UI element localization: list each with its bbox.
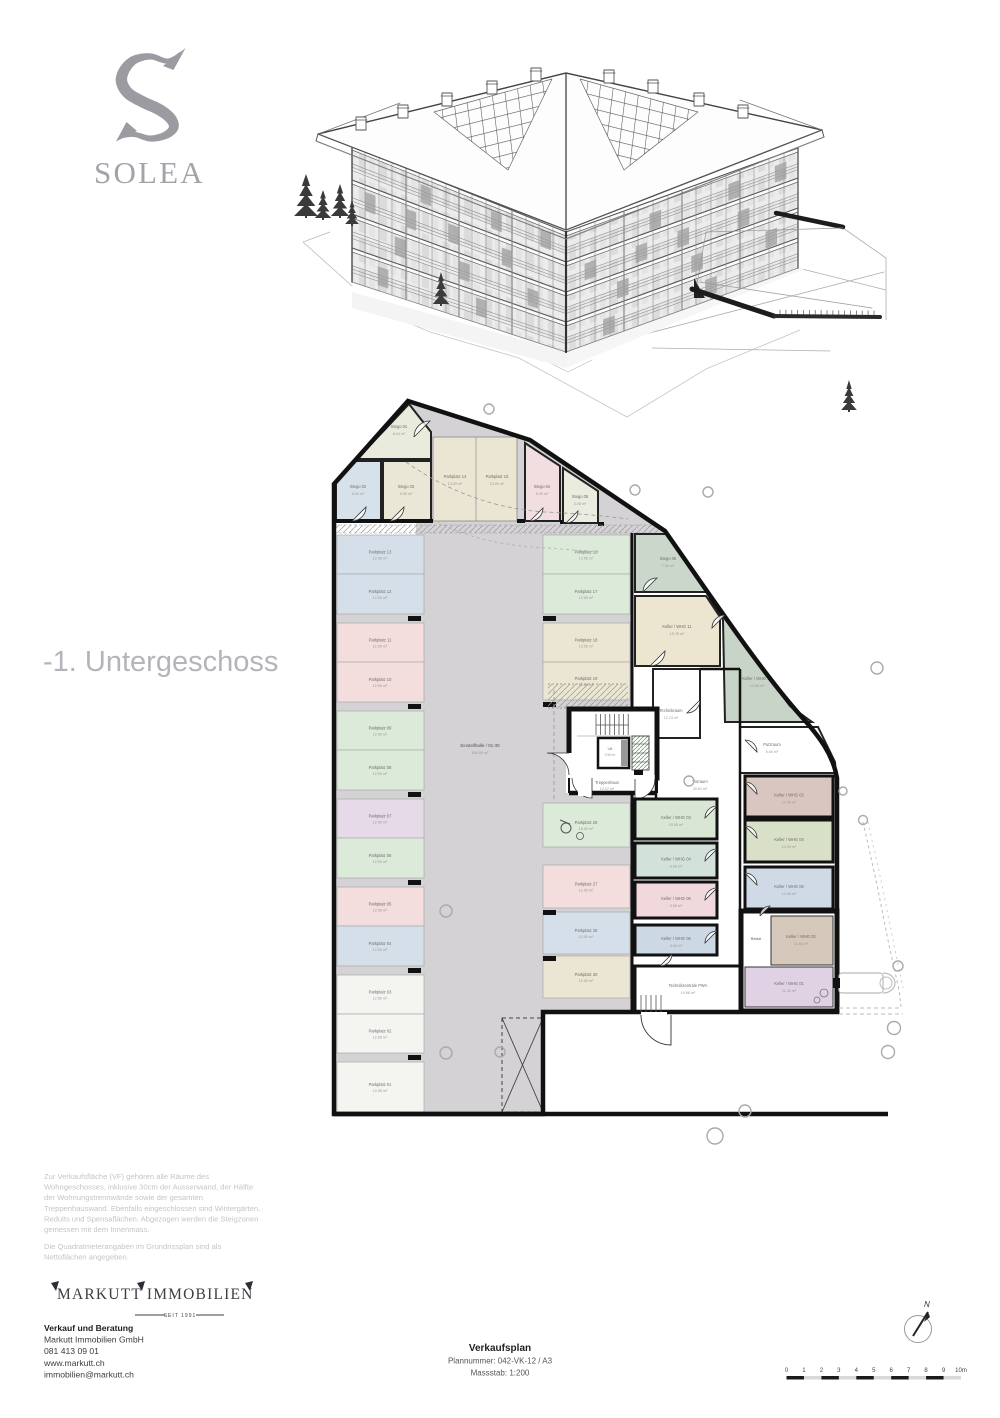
svg-text:SOLEA: SOLEA — [94, 155, 205, 190]
svg-text:Parkplatz 04: Parkplatz 04 — [369, 941, 392, 946]
svg-text:www.markutt.ch: www.markutt.ch — [43, 1358, 105, 1368]
svg-text:Parkplatz 18: Parkplatz 18 — [575, 638, 598, 643]
svg-text:Keller / WHG 04: Keller / WHG 04 — [661, 857, 691, 862]
svg-text:12.50 m²: 12.50 m² — [373, 948, 388, 952]
svg-text:10m: 10m — [955, 1368, 967, 1374]
svg-text:Parkplatz 13: Parkplatz 13 — [369, 550, 392, 555]
svg-text:Parkplatz 26: Parkplatz 26 — [575, 820, 598, 825]
svg-text:9.98 m²: 9.98 m² — [670, 865, 683, 869]
svg-text:12.50 m²: 12.50 m² — [373, 557, 388, 561]
svg-text:Keller / WHG 04: Keller / WHG 04 — [774, 837, 804, 842]
svg-text:Massstab: 1:200: Massstab: 1:200 — [471, 1369, 530, 1378]
svg-text:15.78 m²: 15.78 m² — [670, 632, 685, 636]
svg-text:12.50 m²: 12.50 m² — [579, 596, 594, 600]
svg-text:13.00 m²: 13.00 m² — [490, 482, 505, 486]
svg-text:Parkplatz 11: Parkplatz 11 — [369, 638, 392, 643]
svg-text:Verkaufsplan: Verkaufsplan — [469, 1343, 531, 1354]
svg-text:9.06 m²: 9.06 m² — [400, 492, 413, 496]
svg-text:Parkplatz 27: Parkplatz 27 — [575, 882, 598, 887]
svg-text:Stego 01: Stego 01 — [391, 424, 408, 429]
svg-text:29.61 m²: 29.61 m² — [693, 787, 708, 791]
svg-text:Parkplatz 12: Parkplatz 12 — [369, 589, 392, 594]
svg-text:12.12 m²: 12.12 m² — [600, 787, 615, 791]
svg-text:Putzraum: Putzraum — [763, 742, 781, 747]
svg-text:SEIT 1991: SEIT 1991 — [164, 1313, 197, 1319]
svg-text:12.08 m²: 12.08 m² — [782, 801, 797, 805]
svg-text:Parkplatz 07: Parkplatz 07 — [369, 814, 392, 819]
svg-text:8.04 m²: 8.04 m² — [352, 492, 365, 496]
svg-text:Keller / WHG 06: Keller / WHG 06 — [774, 884, 804, 889]
svg-text:12.50 m²: 12.50 m² — [373, 909, 388, 913]
svg-text:Parkplatz 06: Parkplatz 06 — [369, 853, 392, 858]
svg-text:Keller / WHG 02: Keller / WHG 02 — [786, 934, 816, 939]
svg-text:MARKUTT IMMOBILIEN: MARKUTT IMMOBILIEN — [57, 1286, 254, 1303]
svg-text:12.50 m²: 12.50 m² — [579, 979, 594, 983]
svg-text:Markutt Immobilien GmbH: Markutt Immobilien GmbH — [44, 1335, 144, 1345]
svg-text:12.50 m²: 12.50 m² — [373, 997, 388, 1001]
svg-text:Stego 04: Stego 04 — [534, 484, 551, 489]
svg-text:Reduits und Spensaflächen. Abg: Reduits und Spensaflächen. Abgezogen wer… — [44, 1214, 258, 1223]
svg-text:8.08 m²: 8.08 m² — [670, 944, 683, 948]
svg-text:der Wohnungstrennwände sowie d: der Wohnungstrennwände sowie der gesamte… — [44, 1193, 203, 1202]
svg-text:12.50 m²: 12.50 m² — [579, 889, 594, 893]
svg-text:Parkplatz 30: Parkplatz 30 — [575, 972, 598, 977]
svg-text:13.00 m²: 13.00 m² — [448, 482, 463, 486]
svg-text:9.98 m²: 9.98 m² — [670, 904, 683, 908]
svg-text:12.50 m²: 12.50 m² — [373, 860, 388, 864]
svg-text:-1. Untergeschoss: -1. Untergeschoss — [43, 646, 278, 678]
svg-text:12.50 m²: 12.50 m² — [373, 733, 388, 737]
svg-text:Zur Verkaufsfläche (VF) gehöre: Zur Verkaufsfläche (VF) gehören alle Räu… — [44, 1172, 209, 1181]
svg-text:Keller / WHG 02: Keller / WHG 02 — [774, 793, 804, 798]
svg-text:Parkplatz 05: Parkplatz 05 — [369, 902, 392, 907]
svg-text:Parkplatz 15: Parkplatz 15 — [486, 474, 509, 479]
svg-text:Wohngeschosses, inklusive 30cm: Wohngeschosses, inklusive 30cm der Ausse… — [44, 1183, 253, 1192]
svg-text:Parkplatz 08: Parkplatz 08 — [369, 765, 392, 770]
svg-text:14.08 m²: 14.08 m² — [782, 892, 797, 896]
svg-text:12.50 m²: 12.50 m² — [579, 557, 594, 561]
svg-text:10.08 m²: 10.08 m² — [669, 823, 684, 827]
svg-text:12.74 m²: 12.74 m² — [664, 716, 679, 720]
svg-text:gemessen mit dem Innenmass.: gemessen mit dem Innenmass. — [44, 1225, 150, 1234]
svg-text:12.50 m²: 12.50 m² — [579, 935, 594, 939]
svg-text:11.66 m²: 11.66 m² — [794, 942, 809, 946]
svg-text:Technikzentrale PWA: Technikzentrale PWA — [669, 983, 708, 988]
svg-text:19.68 m²: 19.68 m² — [681, 991, 696, 995]
svg-text:849.00 m²: 849.00 m² — [472, 751, 489, 755]
svg-text:7.06 m²: 7.06 m² — [662, 564, 675, 568]
svg-text:3.96 m²: 3.96 m² — [605, 753, 616, 757]
svg-text:Stego 06: Stego 06 — [660, 556, 677, 561]
svg-text:Lift: Lift — [608, 747, 613, 751]
svg-text:Stego 02: Stego 02 — [350, 484, 367, 489]
svg-text:16.50 m²: 16.50 m² — [579, 827, 594, 831]
svg-text:12.50 m²: 12.50 m² — [373, 596, 388, 600]
svg-text:Parkplatz 09: Parkplatz 09 — [369, 726, 392, 731]
svg-text:Parkplatz 19: Parkplatz 19 — [575, 676, 598, 681]
svg-text:Parkplatz 14: Parkplatz 14 — [444, 474, 467, 479]
svg-text:11.40 m²: 11.40 m² — [782, 989, 797, 993]
svg-text:3.08 m²: 3.08 m² — [574, 502, 587, 506]
svg-text:Parkplatz 02: Parkplatz 02 — [369, 1029, 392, 1034]
svg-text:12.50 m²: 12.50 m² — [373, 772, 388, 776]
svg-text:5.00 m²: 5.00 m² — [536, 492, 549, 496]
svg-text:Treppenhaus: Treppenhaus — [595, 780, 619, 785]
svg-text:Die Quadratmeterangaben im Gru: Die Quadratmeterangaben im Grundrissplan… — [44, 1242, 221, 1251]
svg-text:14.29 m²: 14.29 m² — [782, 845, 797, 849]
svg-text:5.60 m²: 5.60 m² — [766, 750, 779, 754]
svg-text:14.65 m²: 14.65 m² — [750, 684, 765, 688]
svg-text:Keller / WHG 06: Keller / WHG 06 — [661, 936, 691, 941]
svg-text:Verkauf und Beratung: Verkauf und Beratung — [44, 1323, 133, 1333]
svg-text:immobilien@markutt.ch: immobilien@markutt.ch — [44, 1369, 134, 1379]
svg-text:Parkplatz 03: Parkplatz 03 — [369, 990, 392, 995]
svg-text:N: N — [924, 1300, 930, 1309]
svg-text:12.50 m²: 12.50 m² — [373, 645, 388, 649]
svg-text:Parkplatz 28: Parkplatz 28 — [575, 928, 598, 933]
svg-text:Technikraum: Technikraum — [659, 708, 683, 713]
svg-text:Keller / WHG 01: Keller / WHG 01 — [774, 981, 804, 986]
svg-text:12.50 m²: 12.50 m² — [579, 645, 594, 649]
svg-text:Treppenhauswand. Ebenfalls ein: Treppenhauswand. Ebenfalls eingeschlosse… — [44, 1204, 260, 1213]
svg-text:Keller / WHG 05: Keller / WHG 05 — [661, 896, 691, 901]
svg-text:8.04 m²: 8.04 m² — [393, 432, 406, 436]
svg-text:12.50 m²: 12.50 m² — [373, 1089, 388, 1093]
svg-text:Plannummer: 042-VK-12 / A3: Plannummer: 042-VK-12 / A3 — [448, 1357, 553, 1366]
svg-text:12.50 m²: 12.50 m² — [373, 821, 388, 825]
svg-text:12.50 m²: 12.50 m² — [373, 1036, 388, 1040]
svg-text:Nettoflächen angegeben.: Nettoflächen angegeben. — [44, 1253, 129, 1262]
svg-text:Reduit: Reduit — [751, 937, 761, 941]
svg-text:Keller / WHG 11: Keller / WHG 11 — [662, 624, 692, 629]
svg-text:Parkplatz 01: Parkplatz 01 — [369, 1082, 392, 1087]
svg-text:Parkplatz 17: Parkplatz 17 — [575, 589, 598, 594]
svg-text:Keller / WHG 03: Keller / WHG 03 — [661, 815, 691, 820]
svg-text:Stego 03: Stego 03 — [398, 484, 415, 489]
svg-text:12.50 m²: 12.50 m² — [373, 684, 388, 688]
svg-text:Parkplatz 10: Parkplatz 10 — [369, 677, 392, 682]
svg-text:Einstellhalle / 01-30: Einstellhalle / 01-30 — [460, 743, 500, 748]
svg-text:Stego 05: Stego 05 — [572, 494, 589, 499]
svg-text:081 413 09 01: 081 413 09 01 — [44, 1346, 99, 1356]
